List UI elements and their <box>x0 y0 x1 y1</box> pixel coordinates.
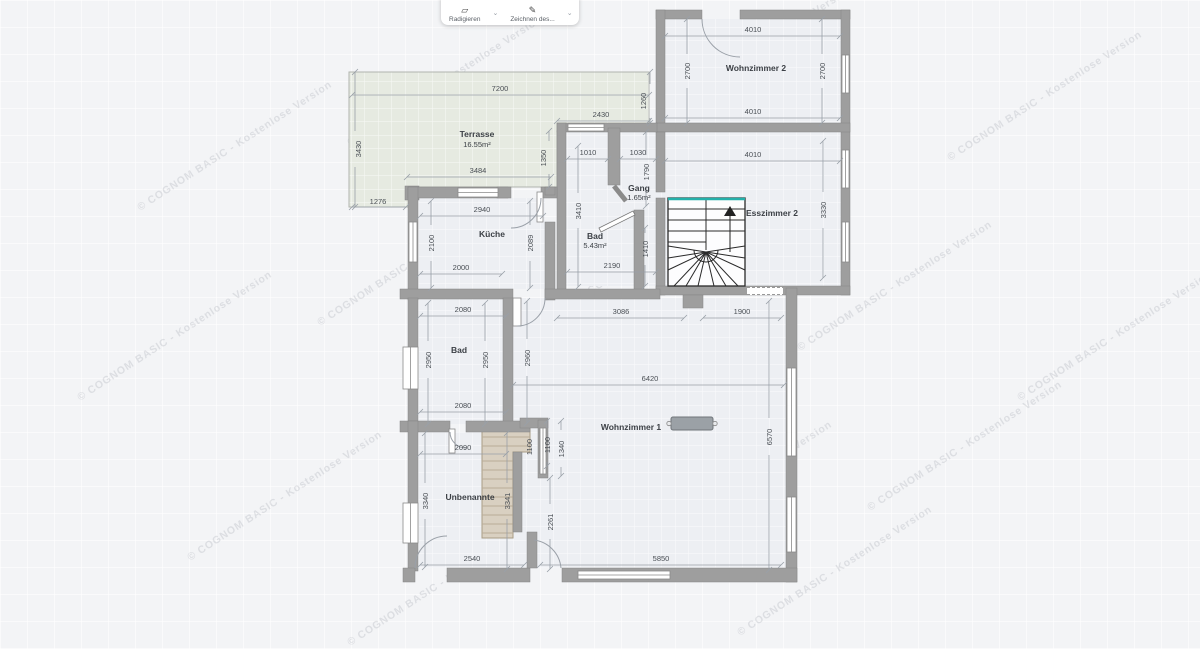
dimension-label: 1030 <box>630 148 647 157</box>
dimension-label: 1900 <box>734 307 751 316</box>
room-label-wohnzimmer2: Wohnzimmer 2 <box>726 63 787 73</box>
dimension-label: 2100 <box>427 235 436 252</box>
dimension-label: 1410 <box>641 241 650 258</box>
dimension-label: 3086 <box>613 307 630 316</box>
dimension-label: 1010 <box>580 148 597 157</box>
draw-button[interactable]: ✎ Zeichnen des... <box>508 6 556 23</box>
dimension-label: 1276 <box>370 197 387 206</box>
dimension-label: 7200 <box>492 84 509 93</box>
room-label-wohnzimmer1: Wohnzimmer 1 <box>601 422 662 432</box>
room-area-terrasse: 16.55m² <box>463 140 491 149</box>
dimension-label: 1260 <box>639 93 648 110</box>
dimension-label: 2089 <box>526 235 535 252</box>
dimension-label: 2950 <box>481 352 490 369</box>
dimension-label: 5850 <box>653 554 670 563</box>
dimension-label: 1340 <box>557 441 566 458</box>
dimension-label: 3484 <box>470 166 487 175</box>
dimension-label: 2080 <box>455 305 472 314</box>
dimension-label: 4010 <box>745 25 762 34</box>
pencil-icon: ✎ <box>529 6 537 15</box>
dimension-label: 1100 <box>543 437 552 453</box>
room-label-terrasse: Terrasse <box>460 129 495 139</box>
dimension-label: 1100 <box>525 439 534 455</box>
dimension-label: 2700 <box>818 63 827 80</box>
dimension-label: 4010 <box>745 107 762 116</box>
erase-button[interactable]: ▱ Radigieren <box>447 6 482 23</box>
dimension-label: 2940 <box>474 205 491 214</box>
dimension-label: 2080 <box>455 401 472 410</box>
toolbar: ▱ Radigieren ⌄ ✎ Zeichnen des... ⌄ <box>441 0 579 25</box>
chevron-down-icon[interactable]: ⌄ <box>492 9 498 17</box>
toolbar-button-label: Radigieren <box>449 16 480 23</box>
dimension-label: 2960 <box>523 350 532 367</box>
room-label-bad-og: Bad <box>587 231 603 241</box>
dimension-label: 6570 <box>765 429 774 446</box>
room-label-unbenannte: Unbenannte <box>445 492 494 502</box>
dimension-label: 6420 <box>642 374 659 383</box>
dimension-label: 3341 <box>503 493 512 510</box>
dimension-label: 3330 <box>819 202 828 219</box>
room-label-esszimmer2: Esszimmer 2 <box>746 208 798 218</box>
dimension-label: 1350 <box>539 150 548 167</box>
room-label-gang: Gang <box>628 183 650 193</box>
eraser-icon: ▱ <box>461 6 468 15</box>
dimension-label: 2000 <box>453 263 470 272</box>
dimension-label: 2540 <box>464 554 481 563</box>
dimension-label: 2190 <box>604 261 621 270</box>
dimension-label: 2261 <box>546 514 555 531</box>
dimension-label: 3430 <box>354 141 363 158</box>
wall-opening-dashed <box>747 287 783 295</box>
radiator[interactable] <box>667 417 717 430</box>
room-area-gang: 1.65m² <box>627 193 651 202</box>
room-label-kueche: Küche <box>479 229 505 239</box>
chevron-down-icon[interactable]: ⌄ <box>567 9 573 17</box>
dimension-label: 2950 <box>424 352 433 369</box>
dimension-label: 2430 <box>593 110 610 119</box>
room-label-bad2: Bad <box>451 345 467 355</box>
dimension-label: 3410 <box>574 203 583 220</box>
toolbar-button-label: Zeichnen des... <box>510 16 554 23</box>
dimension-label: 1790 <box>642 164 651 181</box>
dimension-label: 4010 <box>745 150 762 159</box>
floorplan-canvas[interactable]: 7200 3484 1276 2430 1010 1030 2190 2940 … <box>0 0 1200 600</box>
dimension-label: 2700 <box>683 63 692 80</box>
dimension-label: 2090 <box>455 443 472 452</box>
room-area-bad-og: 5.43m² <box>583 241 607 250</box>
dimension-label: 3340 <box>421 493 430 510</box>
staircase-winder[interactable] <box>668 198 745 286</box>
